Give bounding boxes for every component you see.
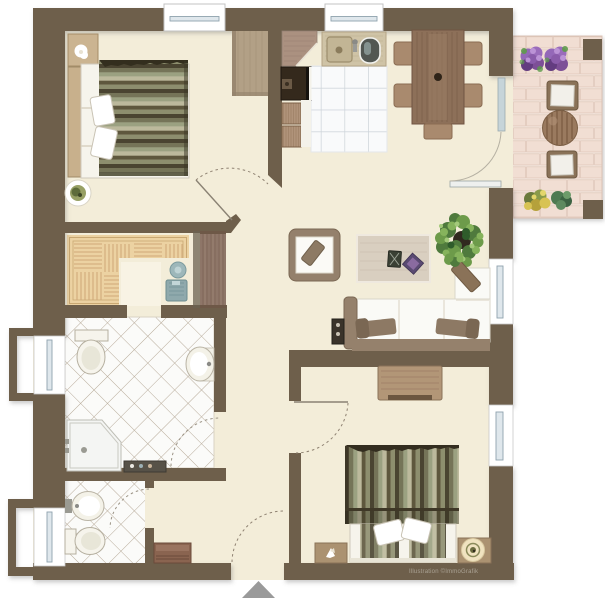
svg-text:Illustration ©ImmoGrafik: Illustration ©ImmoGrafik [409,568,479,575]
